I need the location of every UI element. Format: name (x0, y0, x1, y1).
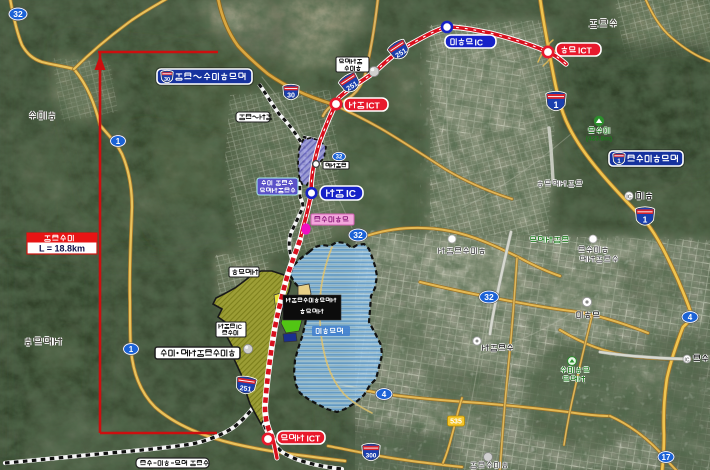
svg-text:IC: IC (346, 189, 356, 200)
svg-text:IC: IC (626, 195, 632, 201)
svg-text:ICT: ICT (578, 45, 593, 55)
svg-text:L = 18.8km: L = 18.8km (39, 244, 85, 254)
svg-text:1: 1 (129, 345, 134, 354)
svg-text:1: 1 (643, 215, 648, 225)
svg-text:32: 32 (13, 9, 23, 19)
svg-text:IC: IC (685, 357, 690, 363)
svg-text:4: 4 (688, 313, 693, 322)
svg-text:IC: IC (475, 37, 484, 47)
svg-text:30: 30 (164, 77, 170, 83)
svg-text:ICT: ICT (366, 100, 381, 110)
svg-text:32: 32 (353, 230, 363, 240)
svg-text:(423.8m): (423.8m) (586, 136, 612, 143)
svg-text:32: 32 (484, 292, 494, 302)
svg-text:32: 32 (336, 155, 343, 161)
svg-text:17: 17 (662, 453, 671, 462)
svg-text:535: 535 (450, 419, 462, 426)
svg-text:ICT: ICT (307, 433, 322, 443)
svg-text:IC: IC (236, 325, 243, 331)
svg-text:300: 300 (366, 453, 377, 460)
svg-text:1: 1 (553, 100, 558, 110)
svg-text:4: 4 (382, 390, 387, 399)
svg-text:1: 1 (116, 137, 121, 146)
svg-text:30: 30 (287, 92, 295, 99)
